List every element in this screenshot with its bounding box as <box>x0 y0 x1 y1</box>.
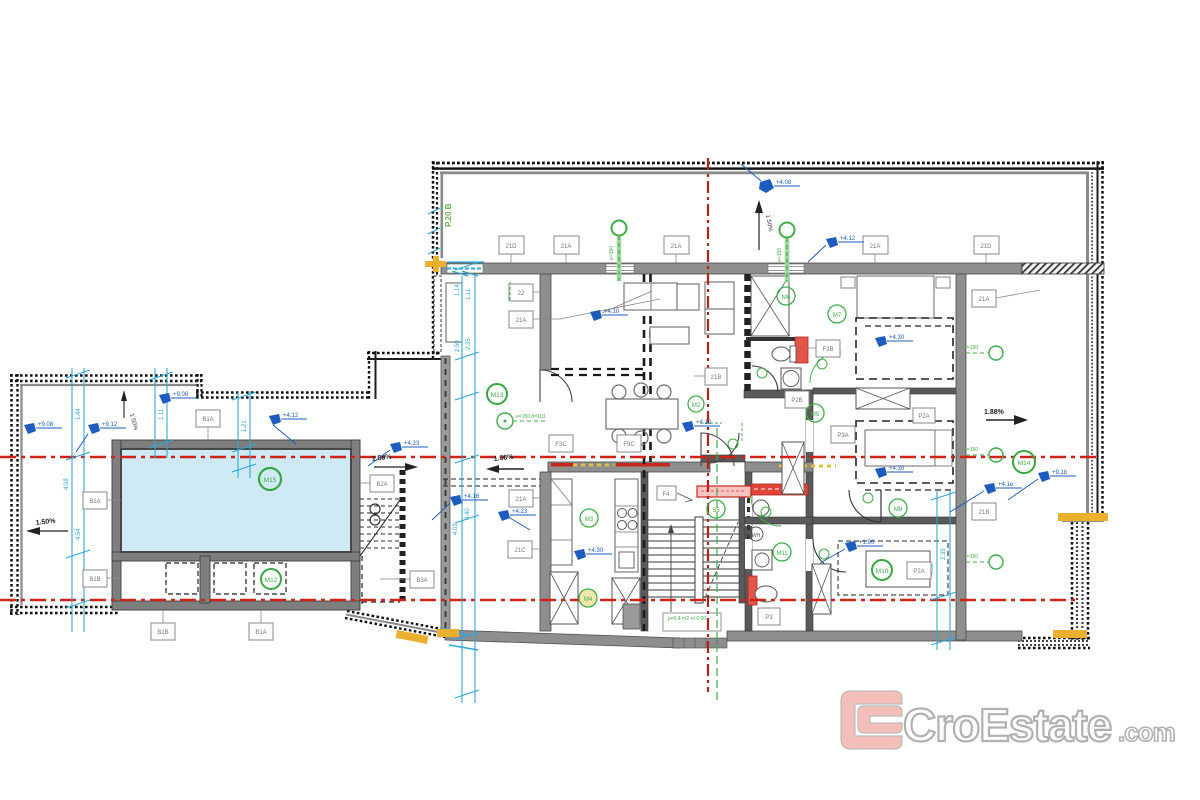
svg-text:P3A: P3A <box>837 433 848 439</box>
svg-text:+9.12: +9.12 <box>102 422 118 428</box>
svg-text:M13: M13 <box>491 392 504 399</box>
svg-text:21D: 21D <box>505 244 517 250</box>
svg-text:F3C: F3C <box>555 442 567 448</box>
svg-text:4.98: 4.98 <box>64 478 70 490</box>
svg-text:+9.08: +9.08 <box>173 392 189 398</box>
svg-text:1.11: 1.11 <box>466 288 472 300</box>
svg-text:+4.08: +4.08 <box>776 180 792 186</box>
svg-text:P2A: P2A <box>918 414 929 420</box>
svg-text:21A: 21A <box>870 244 881 250</box>
svg-text:M14: M14 <box>1018 460 1031 467</box>
svg-text:M5: M5 <box>811 412 820 418</box>
svg-text:1.21: 1.21 <box>242 420 248 432</box>
svg-text:P3: P3 <box>765 615 773 621</box>
svg-text:M2: M2 <box>692 403 701 409</box>
svg-text:+4.12: +4.12 <box>840 236 856 242</box>
svg-text:M3: M3 <box>585 517 594 523</box>
svg-text:M12: M12 <box>265 577 278 584</box>
svg-text:1.11: 1.11 <box>159 408 165 420</box>
svg-text:e=150: e=150 <box>964 447 978 453</box>
svg-text:M8: M8 <box>894 507 903 513</box>
svg-text:+4.1e: +4.1e <box>998 482 1014 488</box>
svg-text:21A: 21A <box>516 497 527 503</box>
svg-text:B3A: B3A <box>416 578 427 584</box>
svg-text:+4.12: +4.12 <box>696 420 712 426</box>
svg-text:21D: 21D <box>980 244 992 250</box>
svg-text:22: 22 <box>518 291 525 297</box>
svg-text:P.20 B: P.20 B <box>444 203 453 227</box>
svg-text:1.44: 1.44 <box>76 408 82 420</box>
svg-text:+4.23: +4.23 <box>404 441 420 447</box>
svg-text:+9.1b: +9.1b <box>1052 470 1068 476</box>
svg-text:S5: S5 <box>712 508 720 514</box>
svg-text:e=150: e=150 <box>964 554 978 560</box>
svg-text:21A: 21A <box>671 244 682 250</box>
svg-text:P2A: P2A <box>913 569 924 575</box>
svg-text:M4: M4 <box>584 597 593 603</box>
svg-text:F4: F4 <box>662 492 670 498</box>
svg-text:1.14: 1.14 <box>455 284 461 296</box>
svg-text:4.40: 4.40 <box>465 508 471 520</box>
svg-text:B1B: B1B <box>89 577 100 583</box>
svg-text:M10: M10 <box>876 568 889 575</box>
svg-text:+1.90: +1.90 <box>859 540 875 546</box>
svg-text:+4.16: +4.16 <box>464 494 480 500</box>
svg-text:4.54: 4.54 <box>76 528 82 540</box>
svg-text:.com: .com <box>1118 717 1175 747</box>
svg-text:+4.30: +4.30 <box>889 335 905 341</box>
svg-text:M15: M15 <box>264 477 277 484</box>
svg-text:4.02: 4.02 <box>453 523 459 535</box>
svg-text:+4.30: +4.30 <box>588 548 604 554</box>
svg-text:+4.30: +4.30 <box>889 466 905 472</box>
svg-text:21C: 21C <box>514 548 526 554</box>
svg-text:F9C: F9C <box>623 442 635 448</box>
svg-text:e=150 d=110: e=150 d=110 <box>516 414 545 420</box>
svg-text:21B: 21B <box>711 375 722 381</box>
svg-text:M11: M11 <box>776 551 788 557</box>
svg-text:21A: 21A <box>979 297 990 303</box>
svg-text:2.50: 2.50 <box>455 340 461 352</box>
svg-text:B1A: B1A <box>255 630 266 636</box>
svg-text:e=150: e=150 <box>777 248 783 262</box>
svg-text:1.88%: 1.88% <box>984 409 1005 416</box>
svg-text:21B: 21B <box>979 510 990 516</box>
svg-text:2.35: 2.35 <box>466 338 472 350</box>
svg-text:2.35: 2.35 <box>941 548 947 560</box>
svg-text:B1A: B1A <box>202 417 213 423</box>
svg-text:e=150: e=150 <box>964 345 978 351</box>
svg-text:+4.23: +4.23 <box>512 509 528 515</box>
svg-text:e=150: e=150 <box>609 246 615 260</box>
svg-text:CroEstate: CroEstate <box>903 699 1112 751</box>
svg-text:WH: WH <box>752 533 761 539</box>
svg-text:B1B: B1B <box>157 630 168 636</box>
svg-text:F3B: F3B <box>822 347 833 353</box>
svg-text:+9.08: +9.08 <box>38 422 54 428</box>
svg-text:21A: 21A <box>561 244 572 250</box>
svg-text:M7: M7 <box>833 313 842 319</box>
svg-text:p=9.4 m2 +/-0.00: p=9.4 m2 +/-0.00 <box>668 616 706 622</box>
svg-text:21A: 21A <box>516 318 527 324</box>
svg-text:+4.12: +4.12 <box>283 413 299 419</box>
svg-text:P2B: P2B <box>791 398 802 404</box>
svg-text:+4.10: +4.10 <box>604 309 620 315</box>
svg-text:B1A: B1A <box>89 499 100 505</box>
svg-text:M6: M6 <box>782 295 791 301</box>
svg-text:B2A: B2A <box>376 482 387 488</box>
